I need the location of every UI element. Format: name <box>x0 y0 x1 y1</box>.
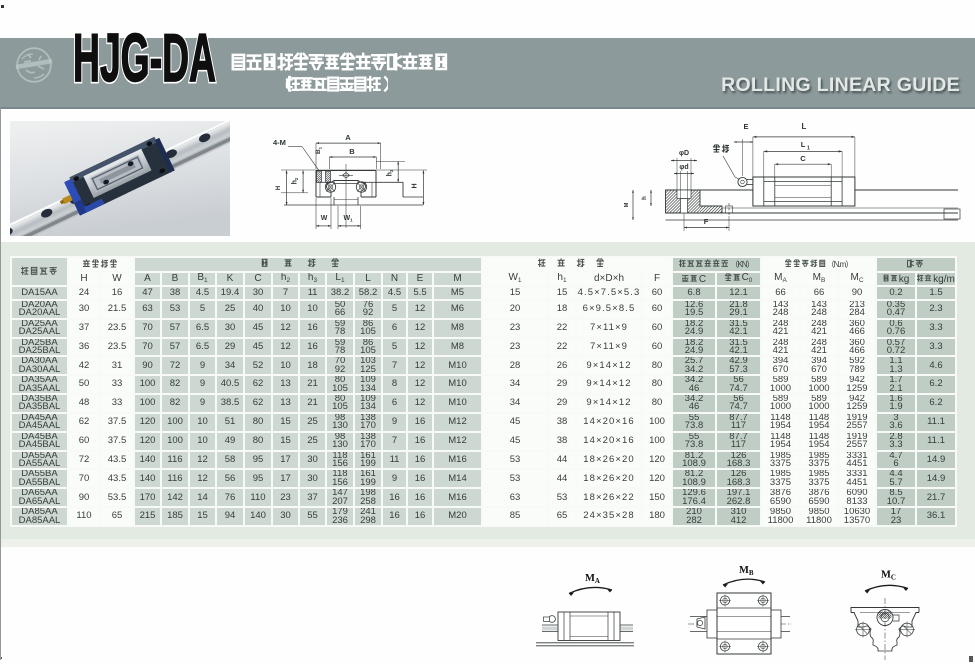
svg-text:L: L <box>802 122 807 131</box>
svg-text:MA: MA <box>585 573 600 585</box>
svg-text:C: C <box>800 154 806 163</box>
svg-text:W: W <box>321 215 328 222</box>
svg-text:H: H <box>412 183 419 188</box>
svg-text:F: F <box>704 217 709 226</box>
svg-text:MC: MC <box>881 570 896 582</box>
svg-text:h2: h2 <box>292 177 300 184</box>
svg-text:h: h <box>642 196 648 200</box>
svg-text:φd: φd <box>679 164 688 171</box>
svg-text:A: A <box>345 133 351 142</box>
svg-text:H: H <box>276 186 282 190</box>
svg-text:HJG-DA: HJG-DA <box>73 26 216 88</box>
svg-text:MB: MB <box>739 565 754 577</box>
svg-text:E: E <box>743 122 748 131</box>
svg-text:φD: φD <box>679 150 689 157</box>
svg-text:L: L <box>801 140 806 149</box>
svg-text:B: B <box>349 147 355 156</box>
svg-text:4-M: 4-M <box>273 138 286 147</box>
svg-text:M: M <box>624 202 630 207</box>
svg-text:1: 1 <box>807 146 810 152</box>
svg-text:W1: W1 <box>344 215 354 223</box>
